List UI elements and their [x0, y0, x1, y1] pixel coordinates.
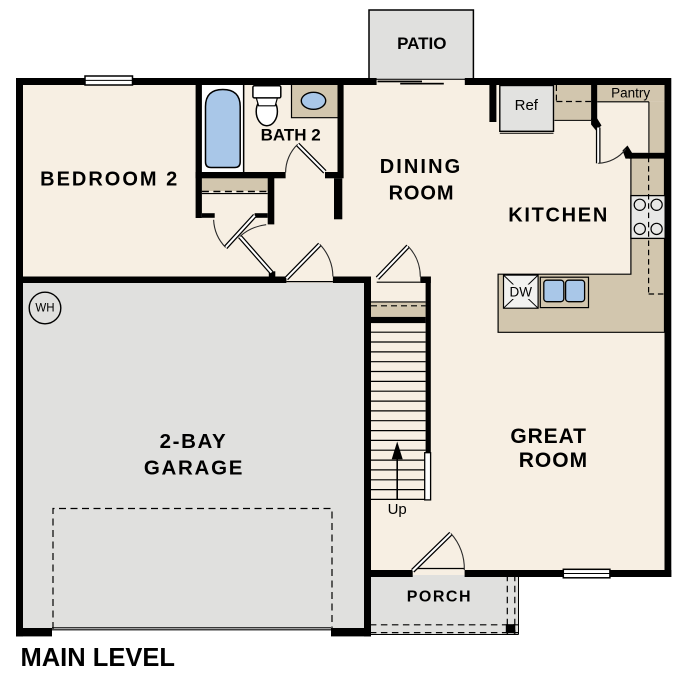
svg-text:2-BAY: 2-BAY	[160, 430, 228, 453]
svg-text:ROOM: ROOM	[519, 449, 588, 472]
svg-text:Pantry: Pantry	[611, 85, 650, 100]
svg-text:PORCH: PORCH	[407, 589, 472, 606]
svg-text:BEDROOM 2: BEDROOM 2	[40, 168, 179, 190]
svg-text:Up: Up	[388, 501, 407, 518]
svg-text:KITCHEN: KITCHEN	[508, 205, 609, 227]
svg-text:PATIO: PATIO	[397, 34, 446, 53]
svg-text:DW: DW	[510, 284, 533, 299]
svg-text:GREAT: GREAT	[510, 425, 586, 448]
svg-text:Ref: Ref	[515, 97, 539, 114]
svg-text:MAIN LEVEL: MAIN LEVEL	[21, 644, 175, 672]
svg-text:ROOM: ROOM	[389, 182, 455, 204]
svg-text:WH: WH	[35, 302, 54, 314]
svg-text:BATH 2: BATH 2	[261, 125, 321, 144]
svg-text:GARAGE: GARAGE	[144, 457, 244, 480]
svg-text:DINING: DINING	[380, 156, 463, 178]
